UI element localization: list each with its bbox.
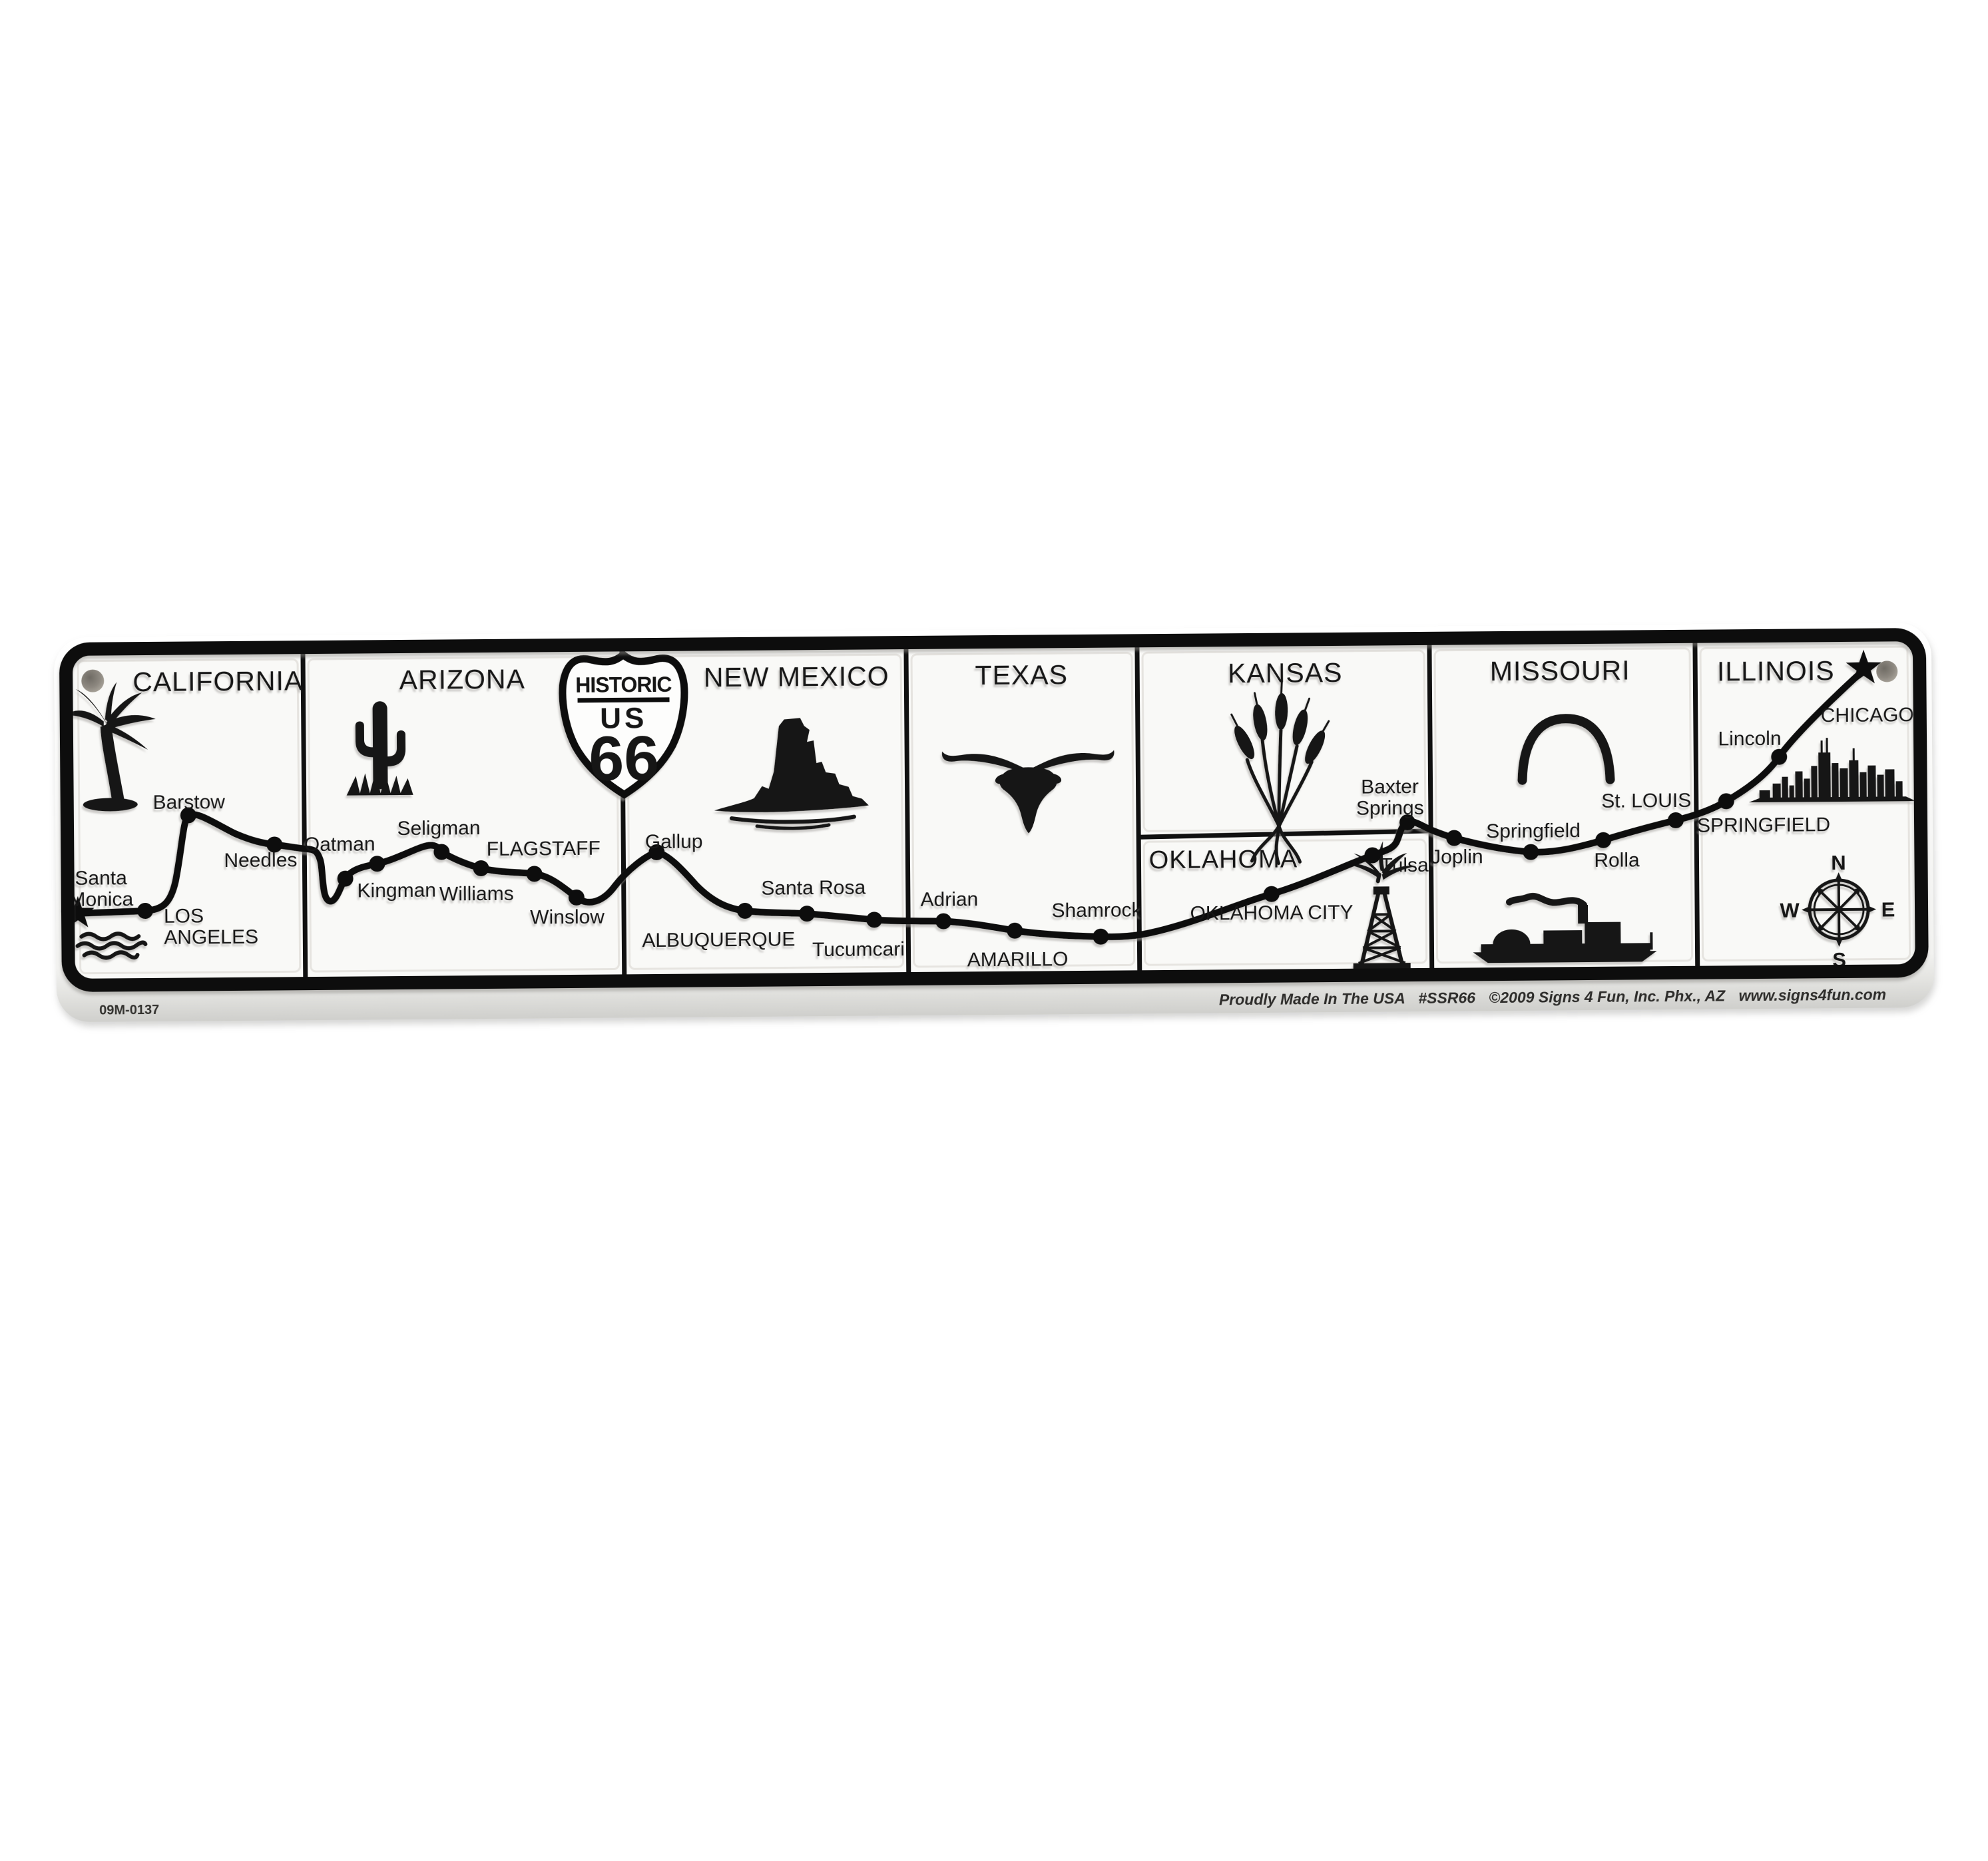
adrian-label: Adrian — [920, 888, 978, 911]
shamrock-label: Shamrock — [1051, 899, 1142, 922]
oklahoma-city-label: OKLAHOMA CITY — [1190, 902, 1353, 925]
los-angeles-label-line2: ANGELES — [164, 926, 258, 949]
joplin-label: Joplin — [1431, 846, 1483, 868]
amarillo-label: AMARILLO — [967, 948, 1069, 971]
los-angeles-label-line1: LOS — [164, 905, 204, 927]
california-title: CALIFORNIA — [132, 665, 303, 697]
city-dot-winslow — [569, 890, 585, 906]
city-dot-rolla — [1595, 832, 1611, 848]
compass-north-label: N — [1831, 851, 1846, 874]
mounting-hole-left — [81, 669, 104, 692]
arizona-title: ARIZONA — [399, 664, 525, 695]
santa-monica-label-line1: Santa — [75, 867, 127, 890]
city-dot-flagstaff — [526, 866, 542, 882]
city-dot-adrian — [935, 914, 951, 930]
barstow-label: Barstow — [152, 791, 225, 814]
city-dot-kingman — [369, 856, 385, 872]
made-in-usa-text: Proudly Made In The USA — [1219, 989, 1405, 1008]
tucumcari-label: Tucumcari — [812, 938, 905, 961]
tulsa-label: Tulsa — [1380, 854, 1429, 877]
seligman-label: Seligman — [397, 817, 480, 840]
rolla-label: Rolla — [1594, 849, 1640, 872]
oatman-label: Oatman — [304, 833, 375, 856]
needles-label: Needles — [224, 849, 297, 872]
williams-label: Williams — [439, 883, 514, 906]
shield-historic-label: HISTORIC — [575, 672, 672, 697]
springfield-il-label: SPRINGFIELD — [1697, 814, 1830, 837]
missouri-title: MISSOURI — [1490, 655, 1630, 686]
copyright-text: ©2009 Signs 4 Fun, Inc. Phx., AZ — [1489, 987, 1726, 1006]
kingman-label: Kingman — [357, 880, 436, 902]
city-dot-santa-rosa — [799, 906, 815, 922]
city-dot-los-angeles — [137, 903, 153, 919]
city-dot-tulsa — [1364, 847, 1380, 863]
springfield-mo-label: Springfield — [1486, 820, 1581, 842]
city-dot-joplin — [1446, 830, 1462, 846]
compass-west-label: W — [1780, 898, 1800, 922]
website-text: www.signs4fun.com — [1738, 985, 1886, 1004]
city-dot-springfield-mo — [1523, 844, 1539, 860]
city-dot-springfield-il — [1718, 793, 1734, 809]
city-dot-oklahoma-city — [1264, 886, 1280, 902]
santa-monica-label-line2: Monica — [69, 888, 133, 911]
gallup-label: Gallup — [645, 830, 703, 853]
santa-rosa-label: Santa Rosa — [761, 877, 866, 900]
chicago-label: CHICAGO — [1821, 704, 1914, 726]
sku-text: #SSR66 — [1418, 989, 1475, 1007]
city-dot-albuquerque — [737, 903, 753, 919]
city-dot-st-louis — [1668, 812, 1684, 828]
city-dot-lincoln — [1771, 749, 1787, 765]
mounting-hole-right — [1876, 661, 1897, 682]
baxter-springs-label-line2: Springs — [1356, 797, 1424, 820]
city-dot-shamrock — [1093, 929, 1109, 945]
shield-route-number: 66 — [589, 723, 660, 794]
route-66-map-sign: HISTORIC US 66 — [54, 623, 1934, 1023]
st-louis-label: St. LOUIS — [1601, 790, 1691, 812]
city-dot-amarillo — [1007, 923, 1023, 939]
city-dot-williams — [473, 860, 489, 876]
city-dot-seligman — [433, 844, 449, 860]
city-dot-tucumcari — [866, 912, 882, 928]
winslow-label: Winslow — [530, 906, 605, 929]
city-dot-oatman — [338, 871, 354, 887]
illinois-title: ILLINOIS — [1717, 655, 1835, 686]
new-mexico-title: NEW MEXICO — [704, 661, 889, 692]
lincoln-label: Lincoln — [1718, 728, 1781, 750]
kansas-title: KANSAS — [1228, 657, 1343, 688]
flagstaff-label: FLAGSTAFF — [487, 838, 601, 860]
baxter-springs-label-line1: Baxter — [1361, 776, 1419, 798]
compass-east-label: E — [1881, 898, 1895, 921]
texas-title: TEXAS — [975, 659, 1068, 690]
serial-number: 09M-0137 — [99, 1003, 159, 1018]
albuquerque-label: ALBUQUERQUE — [642, 928, 795, 951]
oklahoma-title: OKLAHOMA — [1149, 845, 1298, 874]
